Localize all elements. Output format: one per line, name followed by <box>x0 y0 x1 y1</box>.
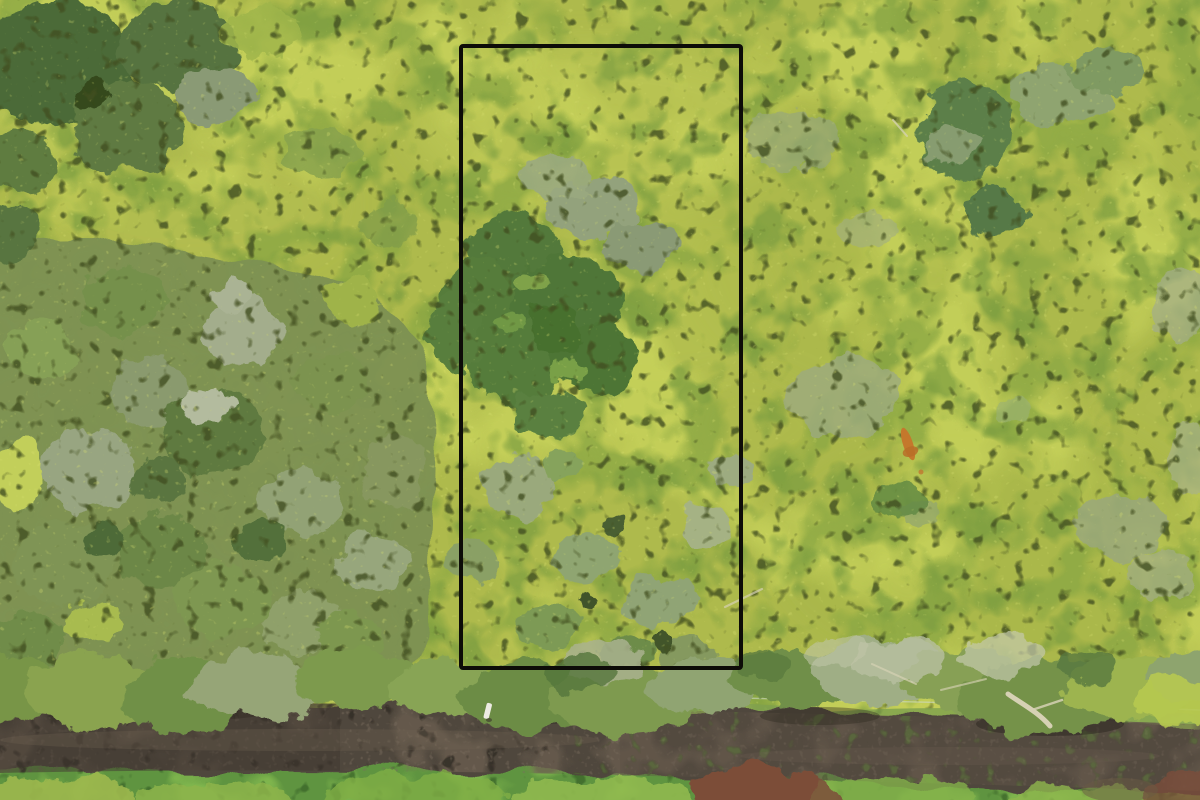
dead-tree-crown <box>962 635 1042 675</box>
dead-tree-crown <box>856 638 948 682</box>
fern-leaflet <box>919 470 924 475</box>
dead-tree-crown <box>806 636 866 668</box>
shadow-gap <box>550 654 610 690</box>
road-streak <box>0 729 600 751</box>
road-streak <box>740 747 1160 765</box>
edge-shadow <box>760 707 880 725</box>
aerial-photo <box>0 0 1200 800</box>
shadow-gap <box>1060 650 1120 686</box>
marker-shadow <box>486 718 492 722</box>
